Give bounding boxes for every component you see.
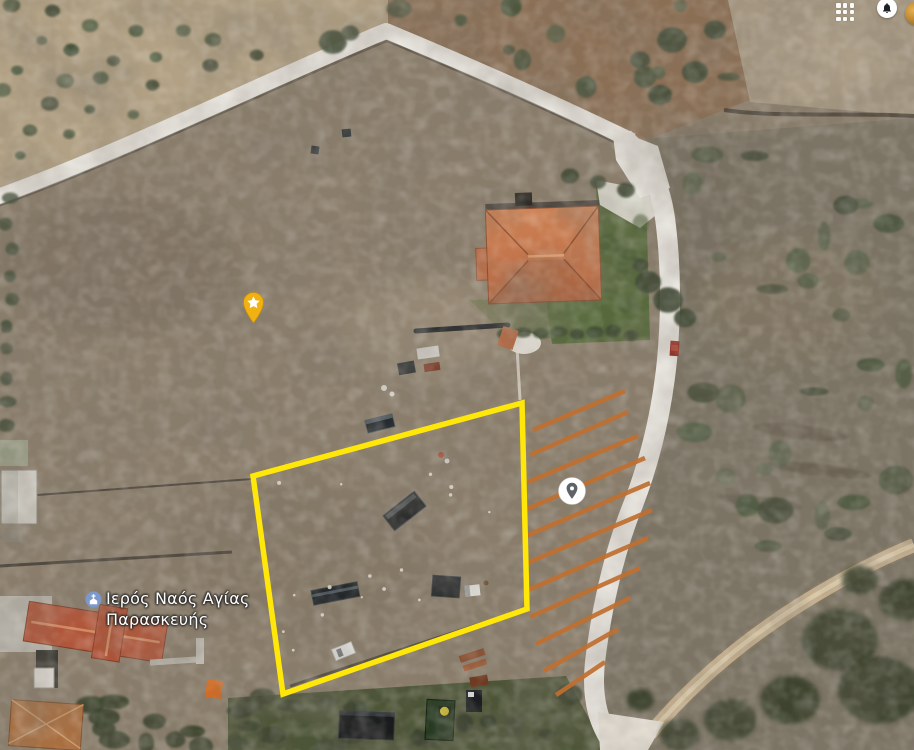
star-pin-icon [240,291,267,325]
church-poi-label[interactable]: Ιερός Ναός Αγίας Παρασκευής [85,588,250,630]
debris-speck [418,599,421,602]
debris-speck [293,594,296,597]
church-icon [85,591,102,608]
debris-speck [449,493,452,496]
poi-label-line1: Ιερός Ναός Αγίας [106,588,250,609]
satellite-imagery [0,0,914,750]
location-pin-icon [557,476,587,506]
debris-speck [382,587,386,591]
debris-speck [429,473,432,476]
poi-label-line2: Παρασκευής [106,609,250,630]
starred-place-pin[interactable] [240,291,267,329]
debris-speck [449,485,453,489]
debris-speck [277,481,281,485]
debris-speck [361,596,363,598]
debris-speck [368,574,372,578]
debris-speck [340,483,343,486]
debris-speck [282,630,285,633]
debris-speck [400,568,403,571]
bell-glyph [881,2,893,14]
debris-speck [292,649,295,652]
satellite-map-canvas[interactable]: Ιερός Ναός Αγίας Παρασκευής [0,0,914,750]
apps-grid-icon[interactable] [836,3,855,22]
debris-speck [321,613,324,616]
texture-noise-light [0,0,914,750]
dropped-pin[interactable] [557,476,587,510]
debris-speck [488,511,490,513]
debris-speck [328,585,332,589]
